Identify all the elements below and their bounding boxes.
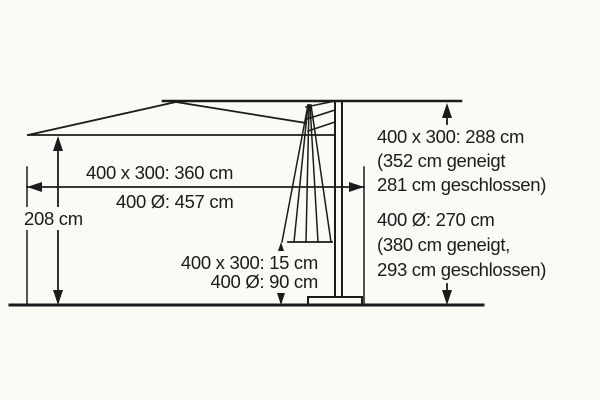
arrow-left-icon [27, 182, 42, 192]
label-pole-offset-round: 400 Ø: 90 cm [209, 270, 320, 293]
arrow-down-icon [53, 290, 63, 305]
mast [335, 102, 342, 297]
arrow-down-icon [442, 290, 452, 305]
label-total-height-rect-line1: 400 x 300: 288 cm [377, 125, 524, 148]
label-clearance-height: 208 cm [22, 207, 85, 230]
arrow-up-icon [442, 103, 452, 118]
parasol-line-drawing [0, 0, 600, 400]
label-total-height-round-line1: 400 Ø: 270 cm [377, 208, 494, 231]
canopy-outline [28, 102, 335, 135]
label-span-width-rect: 400 x 300: 360 cm [86, 161, 233, 184]
label-total-height-round-line2: (380 cm geneigt, [377, 233, 510, 256]
parasol-dimension-diagram: 400 x 300: 360 cm 400 Ø: 457 cm 208 cm 4… [0, 0, 600, 400]
label-span-width-round: 400 Ø: 457 cm [116, 190, 233, 213]
label-total-height-round-line3: 293 cm geschlossen) [377, 258, 546, 281]
arrow-up-icon [53, 136, 63, 151]
label-total-height-rect-line2: (352 cm geneigt [377, 149, 505, 172]
arrow-right-icon [349, 182, 364, 192]
label-total-height-rect-line3: 281 cm geschlossen) [377, 173, 546, 196]
